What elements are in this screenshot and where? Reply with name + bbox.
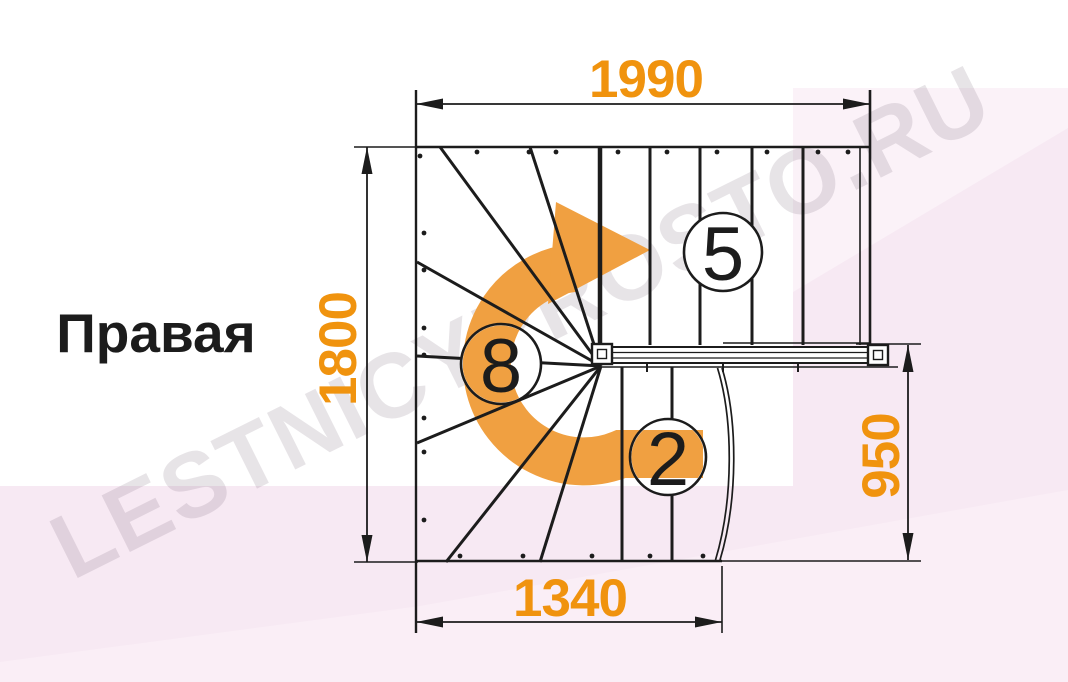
- plan-title: Правая: [56, 302, 255, 364]
- stair-plan-drawing: LESTNICYPROSTO.RU: [0, 0, 1068, 682]
- fastener-dot: [846, 150, 851, 155]
- dim-label-right-height: 950: [852, 413, 911, 498]
- fastener-dot: [715, 150, 720, 155]
- newel-post-left-core: [598, 350, 607, 359]
- fastener-dot: [665, 150, 670, 155]
- fastener-dot: [422, 268, 427, 273]
- fastener-dot: [590, 554, 595, 559]
- fastener-dot: [554, 150, 559, 155]
- fastener-dot: [475, 150, 480, 155]
- fastener-dot: [816, 150, 821, 155]
- fastener-dot: [458, 554, 463, 559]
- fastener-dot: [418, 154, 423, 159]
- fastener-dot: [422, 518, 427, 523]
- rail-body: [612, 347, 868, 363]
- newel-post-right-core: [874, 351, 883, 360]
- fastener-dot: [701, 554, 706, 559]
- fastener-dot: [422, 450, 427, 455]
- lower-flight-step-count: 2: [647, 417, 689, 502]
- handrail: [592, 343, 898, 372]
- stair-plan-page: LESTNICYPROSTO.RU: [0, 0, 1068, 682]
- fastener-dot: [648, 554, 653, 559]
- fastener-dot: [616, 150, 621, 155]
- fastener-dot: [422, 353, 427, 358]
- fastener-dot: [765, 150, 770, 155]
- dim-label-top-width: 1990: [589, 50, 703, 109]
- dim-label-left-height: 1800: [309, 292, 368, 406]
- winder-step-count: 8: [480, 324, 522, 409]
- fastener-dot: [527, 150, 532, 155]
- upper-flight-step-count: 5: [702, 212, 744, 297]
- fastener-dot: [422, 416, 427, 421]
- fastener-dot: [422, 231, 427, 236]
- fastener-dot: [422, 326, 427, 331]
- fastener-dot: [521, 554, 526, 559]
- dim-label-bottom-width: 1340: [513, 569, 627, 628]
